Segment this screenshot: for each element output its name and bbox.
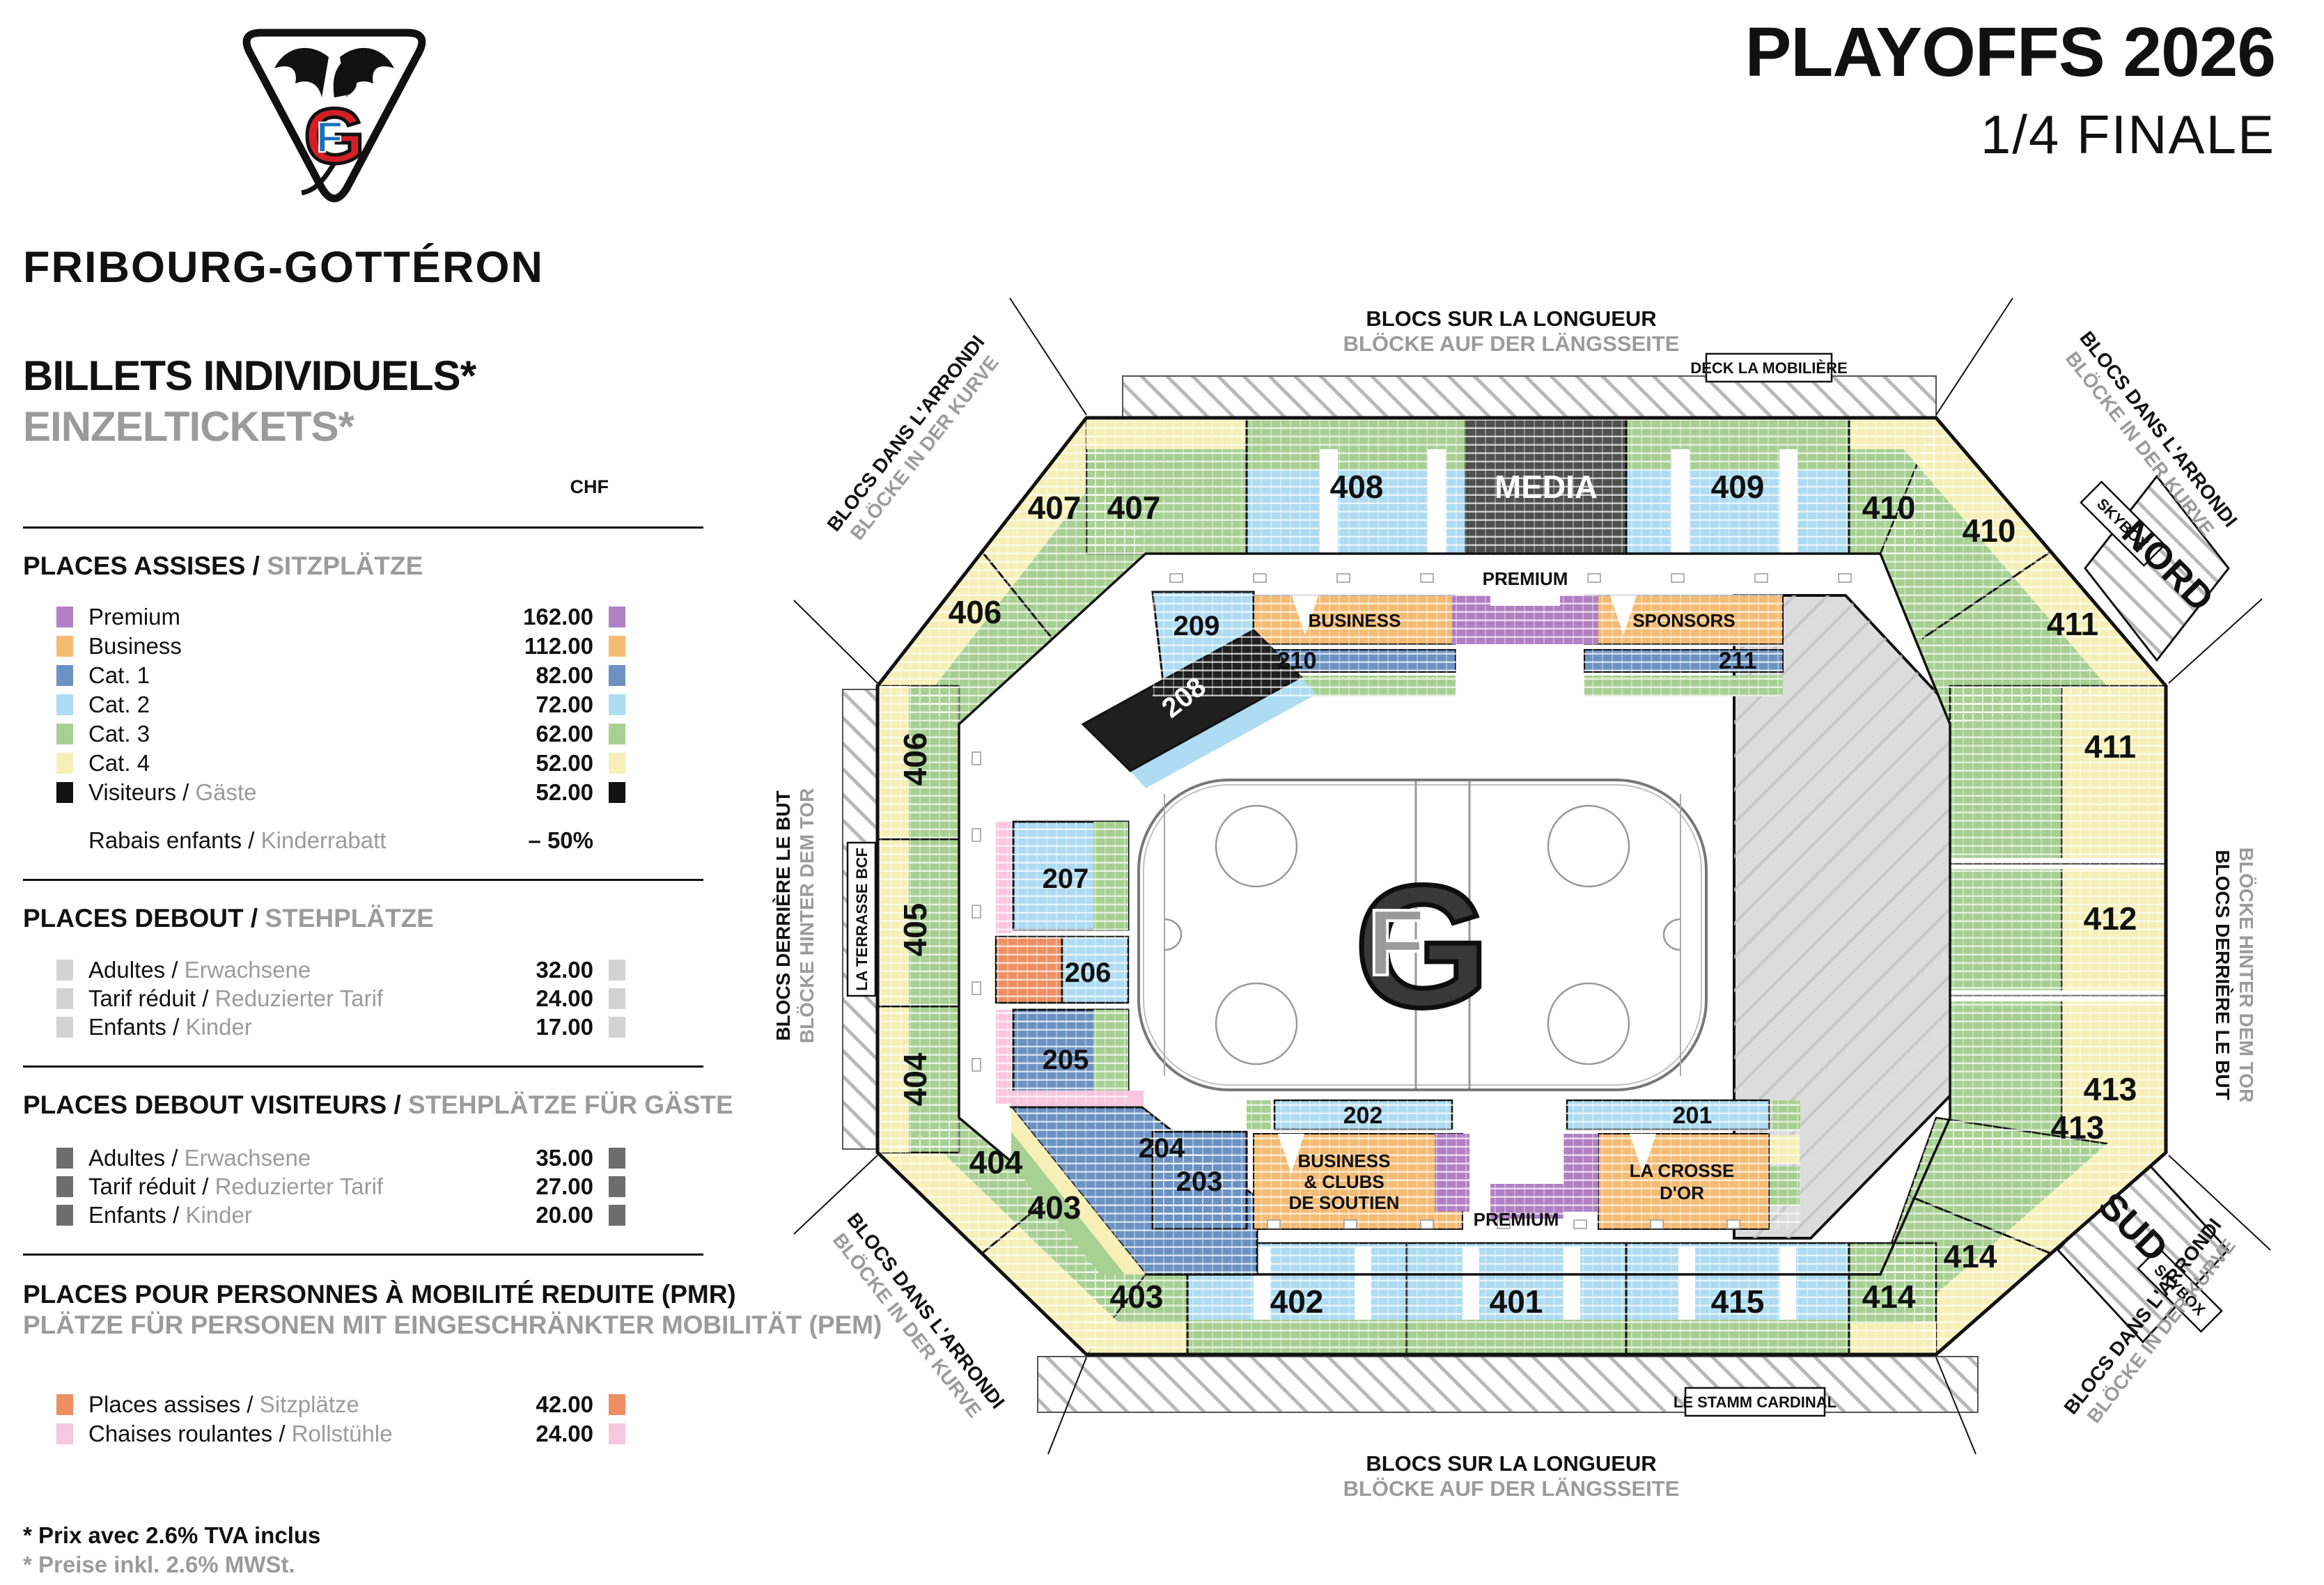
swatch-premium [609,607,625,627]
swatch-business [609,636,625,657]
svg-text:210: 210 [1277,648,1317,674]
swatch-standing [56,988,73,1009]
svg-text:211: 211 [1719,648,1757,674]
svg-text:BLÖCKE IN DER KURVE: BLÖCKE IN DER KURVE [829,1229,985,1421]
swatch-wheelchair [56,1423,73,1444]
svg-text:415: 415 [1711,1283,1765,1320]
svg-text:410: 410 [1862,490,1916,526]
price-row-visitors: Visiteurs / Gäste 52.00 [56,778,625,807]
currency-label: CHF [23,476,609,498]
svg-text:401: 401 [1490,1283,1543,1320]
swatch-standing [609,988,625,1009]
swatch-cat1 [609,665,625,686]
terrasse-bcf-box: LA TERRASSE BCF [848,843,875,996]
pricing-title-fr: BILLETS INDIVIDUELS* [23,352,476,400]
svg-text:408: 408 [1330,469,1384,505]
logo-letter-f: F [316,114,343,162]
swatch-cat1 [56,665,73,686]
svg-text:206: 206 [1065,958,1112,988]
svg-text:D'OR: D'OR [1660,1182,1704,1203]
divider [23,879,703,881]
page-title: PLAYOFFS 2026 [1628,13,2275,93]
price-row-kids-discount: Rabais enfants / Kinderrabatt – 50% [56,826,625,855]
svg-text:406: 406 [949,594,1002,630]
svg-text:403: 403 [1028,1189,1082,1226]
arena-map: DINE & VIEW [766,279,2324,1511]
svg-text:BUSINESS: BUSINESS [1309,610,1401,631]
svg-text:207: 207 [1043,864,1089,894]
pricing-title-de: EINZELTICKETS* [23,403,354,451]
svg-text:403: 403 [1110,1279,1164,1315]
swatch-cat4 [56,753,73,774]
swatch-standing [609,960,625,981]
svg-text:204: 204 [1139,1133,1185,1164]
svg-text:407: 407 [1028,490,1082,526]
svg-text:BUSINESS: BUSINESS [1298,1150,1391,1171]
swatch-standing [609,1017,625,1038]
footnote-de: * Preise inkl. 2.6% MWSt. [23,1552,295,1578]
swatch-cat2 [56,694,73,715]
price-row-vis-standing-adults: Adultes / Erwachsene 35.00 [56,1143,625,1173]
swatch-standing-visitors [609,1148,625,1169]
divider [23,526,703,529]
price-row-premium: Premium 162.00 [56,602,625,632]
svg-text:404: 404 [969,1144,1023,1180]
rink-logo: G F [1355,849,1490,1043]
price-row-standing-reduced: Tarif réduit / Reduzierter Tarif 24.00 [56,984,625,1013]
swatch-cat4 [609,753,625,774]
svg-text:413: 413 [2051,1109,2105,1146]
svg-text:LA CROSSE: LA CROSSE [1630,1160,1735,1181]
heading-pmr-de: PLÄTZE FÜR PERSONEN MIT EINGESCHRÄNKTER … [23,1311,882,1340]
svg-text:BLOCS DANS L'ARRONDI: BLOCS DANS L'ARRONDI [822,331,988,536]
svg-text:407: 407 [1107,490,1161,526]
swatch-visitors [609,782,625,803]
price-row-pmr-seats: Places assises / Sitzplätze 42.00 [56,1390,625,1419]
price-row-standing-kids: Enfants / Kinder 17.00 [56,1013,625,1042]
stamm-cardinal-label: LE STAMM CARDINAL [1674,1393,1836,1411]
svg-text:MEDIA: MEDIA [1495,469,1598,505]
page-subtitle: 1/4 FINALE [1628,103,2275,166]
price-row-cat1: Cat. 1 82.00 [56,661,625,690]
svg-text:412: 412 [2084,900,2137,937]
blocs-longueur-top-fr: BLOCS SUR LA LONGUEUR [1366,306,1656,331]
svg-text:F: F [1368,890,1425,995]
swatch-visitors [56,782,73,803]
ticket-poster: G F FRIBOURG-GOTTÉRON PLAYOFFS 2026 1/4 … [0,0,2324,1585]
swatch-pmr-seat [56,1394,73,1415]
swatch-standing-visitors [56,1148,73,1169]
svg-text:203: 203 [1176,1166,1223,1197]
svg-text:PREMIUM: PREMIUM [1483,568,1568,589]
swatch-standing-visitors [56,1176,73,1197]
swatch-cat2 [609,694,625,715]
svg-text:SPONSORS: SPONSORS [1632,610,1735,631]
price-row-cat4: Cat. 4 52.00 [56,749,625,778]
svg-text:PREMIUM: PREMIUM [1474,1209,1559,1230]
svg-text:201: 201 [1673,1102,1713,1129]
svg-text:402: 402 [1270,1283,1324,1320]
price-row-vis-standing-kids: Enfants / Kinder 20.00 [56,1201,625,1230]
deck-mobiliere-label: DECK LA MOBILIÈRE [1690,359,1847,377]
heading-places-debout-visiteurs: PLACES DEBOUT VISITEURS / STEHPLÄTZE FÜR… [23,1091,733,1120]
divider [23,1254,703,1256]
blocs-longueur-bottom-fr: BLOCS SUR LA LONGUEUR [1366,1451,1656,1476]
swatch-business [56,636,73,657]
svg-text:209: 209 [1173,611,1220,641]
svg-text:411: 411 [2047,606,2098,642]
swatch-standing-visitors [609,1176,625,1197]
swatch-pmr-seat [609,1394,625,1415]
price-row-cat2: Cat. 2 72.00 [56,690,625,719]
svg-text:& CLUBS: & CLUBS [1304,1171,1385,1192]
swatch-cat3 [56,724,73,744]
price-row-business: Business 112.00 [56,632,625,661]
swatch-cat3 [609,724,625,744]
svg-text:205: 205 [1043,1045,1089,1075]
club-logo: G F [230,15,439,217]
swatch-spacer [609,830,625,851]
ice-rink: G F [1139,780,1706,1090]
heading-places-debout: PLACES DEBOUT / STEHPLÄTZE [23,904,434,933]
blocs-but-right-fr: BLOCS DERRIÈRE LE BUT [2212,850,2233,1100]
price-row-cat3: Cat. 3 62.00 [56,719,625,749]
svg-text:414: 414 [1944,1238,1997,1274]
footnote-fr: * Prix avec 2.6% TVA inclus [23,1522,320,1549]
price-row-wheelchair: Chaises roulantes / Rollstühle 24.00 [56,1419,625,1449]
svg-text:409: 409 [1711,469,1765,505]
svg-text:BLÖCKE IN DER KURVE: BLÖCKE IN DER KURVE [846,352,1003,544]
svg-text:410: 410 [1963,513,2016,549]
svg-text:DE SOUTIEN: DE SOUTIEN [1289,1192,1400,1213]
swatch-standing [56,1017,73,1038]
blocs-but-left-de: BLÖCKE HINTER DEM TOR [796,788,818,1044]
blocs-longueur-top-de: BLÖCKE AUF DER LÄNGSSEITE [1343,331,1680,356]
svg-text:413: 413 [2084,1071,2137,1107]
blocs-arrondi-tl: BLOCS DANS L'ARRONDI BLÖCKE IN DER KURVE [822,331,1007,550]
price-row-vis-standing-reduced: Tarif réduit / Reduzierter Tarif 27.00 [56,1172,625,1201]
swatch-standing-visitors [609,1205,625,1226]
blocs-but-left-fr: BLOCS DERRIÈRE LE BUT [772,790,794,1040]
svg-text:405: 405 [897,903,933,957]
blocs-longueur-bottom-de: BLÖCKE AUF DER LÄNGSSEITE [1343,1476,1680,1501]
swatch-standing [56,960,73,981]
svg-text:LA TERRASSE BCF: LA TERRASSE BCF [853,848,871,991]
svg-text:414: 414 [1862,1279,1916,1315]
svg-text:406: 406 [897,733,933,786]
divider [23,1065,703,1068]
svg-text:411: 411 [2084,728,2136,765]
swatch-wheelchair [609,1423,625,1444]
swatch-standing-visitors [56,1205,73,1226]
team-name: FRIBOURG-GOTTÉRON [23,242,544,292]
svg-text:404: 404 [897,1052,933,1106]
price-row-standing-adults: Adultes / Erwachsene 32.00 [56,955,625,985]
heading-places-assises: PLACES ASSISES / SITZPLÄTZE [23,552,423,581]
blocs-but-right-de: BLÖCKE HINTER DEM TOR [2236,848,2257,1103]
svg-text:202: 202 [1343,1102,1383,1129]
swatch-premium [56,607,73,627]
heading-pmr-fr: PLACES POUR PERSONNES À MOBILITÉ REDUITE… [23,1280,736,1309]
